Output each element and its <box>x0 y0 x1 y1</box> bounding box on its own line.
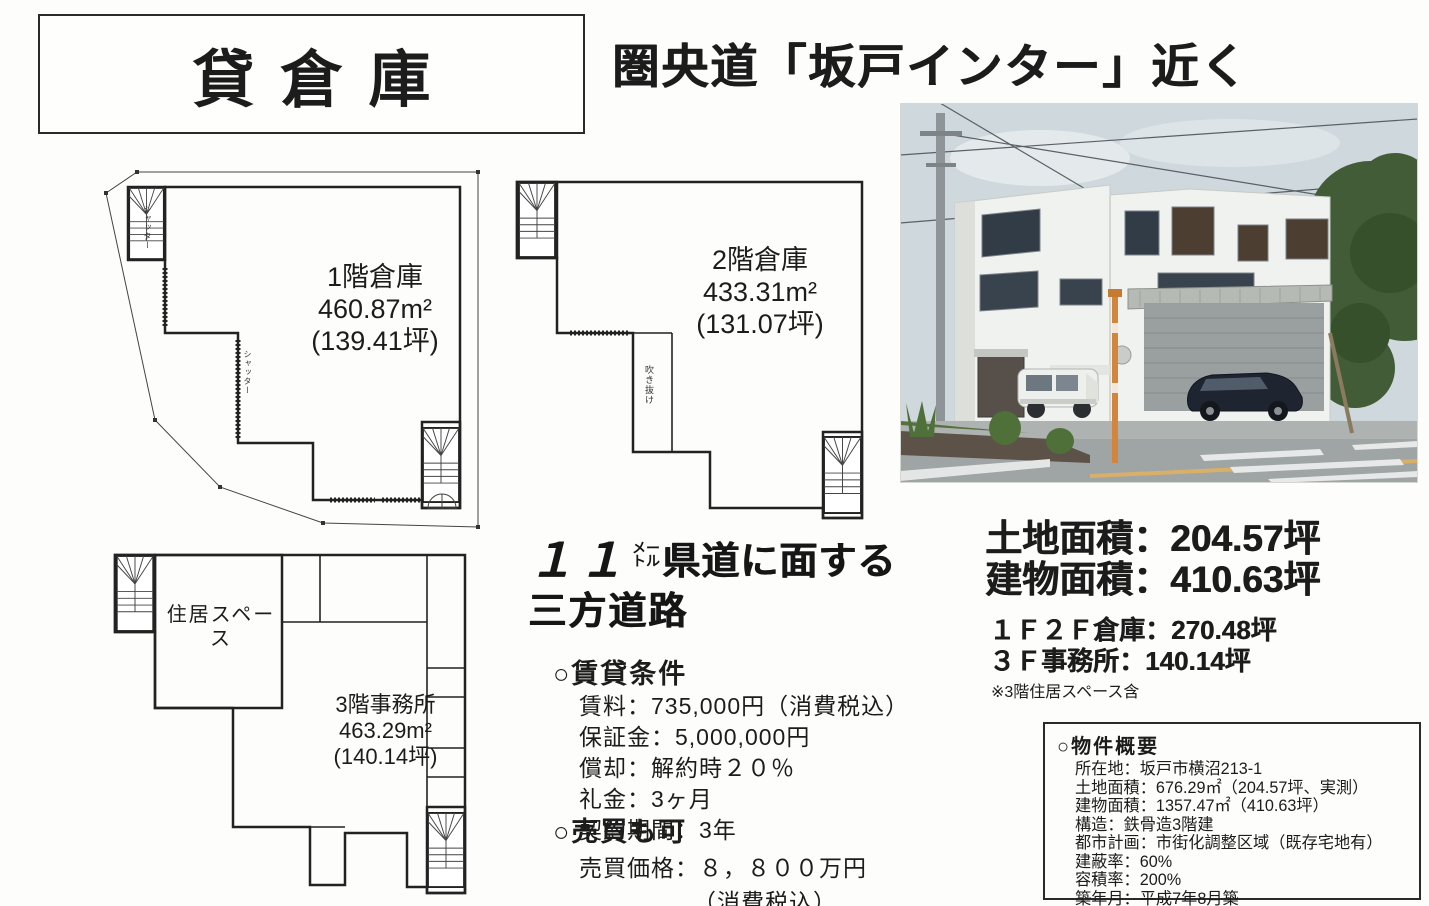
rental-item-rent: 賃料：735,000円（消費税込） <box>579 691 909 722</box>
rental-item-deposit: 保証金：5,000,000円 <box>579 722 909 753</box>
road-note-unit-bottom: トル <box>632 555 660 568</box>
land-area-line: 土地面積：204.57坪 <box>985 518 1425 559</box>
floor-plan-3f: 住居スペース 3階事務所 463.29m² (140.14坪) <box>88 540 518 906</box>
plan-3f-name: 3階事務所 <box>293 692 478 718</box>
warehouse-area-line: １Ｆ２Ｆ倉庫：270.48坪 <box>989 615 1425 646</box>
summary-heading: ○物件概要 <box>1057 730 1409 759</box>
title-box: 貸倉庫 <box>38 14 585 134</box>
plan-3f-area: 463.29m² <box>293 718 478 744</box>
plan-2f-area: 433.31m² <box>650 277 870 309</box>
summary-land-area: 土地面積：676.29㎡（204.57坪、実測） <box>1075 779 1409 798</box>
summary-coverage-ratio: 建蔽率：60% <box>1075 853 1409 872</box>
plan-1f-area: 460.87m² <box>265 294 485 326</box>
road-note-unit: メー トル <box>632 542 660 568</box>
plan-3f-label: 3階事務所 463.29m² (140.14坪) <box>293 692 478 770</box>
residence-note: ※3階住居スペース含 <box>991 678 1425 702</box>
plan-1f-name: 1階倉庫 <box>265 262 485 294</box>
plan-1f-shutter-label-1: シャッター <box>142 205 153 250</box>
plan-3f-residence-label: 住居スペース <box>160 604 282 651</box>
building-photo-drawing <box>900 103 1418 483</box>
plan-2f-tsubo: (131.07坪) <box>650 309 870 341</box>
flyer-page: 貸倉庫 圏央道「坂戸インター」近く <box>0 0 1429 906</box>
plan-1f-shutter-label-2: シャッター <box>242 350 253 395</box>
headline: 圏央道「坂戸インター」近く <box>612 28 1312 97</box>
rental-heading: ○賃貸条件 <box>553 652 909 691</box>
summary-items: 所在地：坂戸市横沼213-1 土地面積：676.29㎡（204.57坪、実測） … <box>1075 760 1409 906</box>
plan-2f-label: 2階倉庫 433.31m² (131.07坪) <box>650 245 870 341</box>
road-note-line2: 三方道路 <box>528 590 908 634</box>
sale-heading: ○売買も可 <box>553 810 867 849</box>
summary-building-area: 建物面積：1357.47㎡（410.63坪） <box>1075 797 1409 816</box>
floor-plan-2f-drawing <box>510 165 890 535</box>
area-summary: 土地面積：204.57坪 建物面積：410.63坪 １Ｆ２Ｆ倉庫：270.48坪… <box>985 518 1425 702</box>
plan-1f-tsubo: (139.41坪) <box>265 326 485 358</box>
sale-price: 売買価格：８，８００万円 <box>579 849 867 883</box>
plan-3f-tsubo: (140.14坪) <box>293 744 478 770</box>
summary-structure: 構造：鉄骨造3階建 <box>1075 816 1409 835</box>
rental-item-amortization: 償却：解約時２０％ <box>579 753 909 784</box>
floor-plan-1f: 1階倉庫 460.87m² (139.41坪) シャッター シャッター <box>30 150 510 550</box>
road-note-text: 県道に面する <box>662 538 896 586</box>
building-area-line: 建物面積：410.63坪 <box>985 559 1425 600</box>
summary-built-date: 築年月：平成7年8月築 <box>1075 890 1409 906</box>
property-summary-box: ○物件概要 所在地：坂戸市横沼213-1 土地面積：676.29㎡（204.57… <box>1043 722 1421 900</box>
summary-floor-ratio: 容積率：200% <box>1075 871 1409 890</box>
building-photo <box>900 103 1418 483</box>
plan-2f-void-label: 吹き抜け <box>643 365 656 405</box>
page-title: 貸倉庫 <box>166 29 456 119</box>
sale-section: ○売買も可 売買価格：８，８００万円 （消費税込） <box>553 810 867 906</box>
plan-1f-label: 1階倉庫 460.87m² (139.41坪) <box>265 262 485 358</box>
plan-2f-name: 2階倉庫 <box>650 245 870 277</box>
summary-location: 所在地：坂戸市横沼213-1 <box>1075 760 1409 779</box>
road-note-number: １１ <box>528 538 628 582</box>
summary-city-planning: 都市計画：市街化調整区域（既存宅地有） <box>1075 834 1409 853</box>
road-note: １１ メー トル 県道に面する 三方道路 <box>528 538 908 634</box>
floor-plan-2f: 2階倉庫 433.31m² (131.07坪) 吹き抜け <box>510 165 890 535</box>
road-note-line1: １１ メー トル 県道に面する <box>528 538 908 590</box>
sale-tax-note: （消費税込） <box>693 883 867 906</box>
office-area-line: ３Ｆ事務所：140.14坪 <box>989 646 1425 677</box>
